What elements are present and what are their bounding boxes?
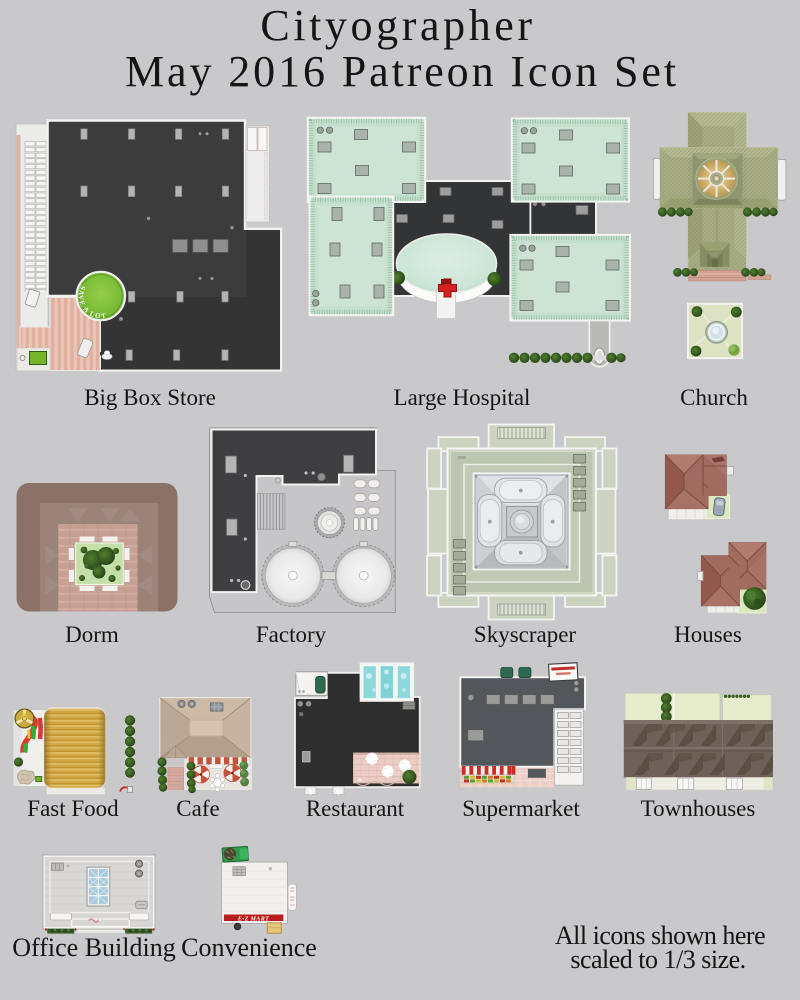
svg-text:scaled to 1/3 size.: scaled to 1/3 size. <box>570 945 745 974</box>
svg-text:Dorm: Dorm <box>65 622 119 647</box>
svg-text:Office Building: Office Building <box>12 933 175 962</box>
svg-text:Fast Food: Fast Food <box>27 796 119 821</box>
svg-text:May 2016 Patreon Icon Set: May 2016 Patreon Icon Set <box>125 47 679 96</box>
svg-text:Supermarket: Supermarket <box>462 796 580 821</box>
svg-text:Convenience: Convenience <box>181 933 317 962</box>
svg-text:Houses: Houses <box>674 622 742 647</box>
svg-text:Restaurant: Restaurant <box>306 796 405 821</box>
svg-text:Cityographer: Cityographer <box>260 1 535 50</box>
svg-text:Large Hospital: Large Hospital <box>394 385 531 410</box>
svg-text:Church: Church <box>680 385 748 410</box>
svg-text:Townhouses: Townhouses <box>641 796 756 821</box>
svg-text:E-Z MART: E-Z MART <box>237 916 269 922</box>
svg-text:Big Box Store: Big Box Store <box>84 385 216 410</box>
svg-text:Cafe: Cafe <box>176 796 219 821</box>
svg-text:Skyscraper: Skyscraper <box>474 622 577 647</box>
svg-text:Factory: Factory <box>256 622 327 647</box>
